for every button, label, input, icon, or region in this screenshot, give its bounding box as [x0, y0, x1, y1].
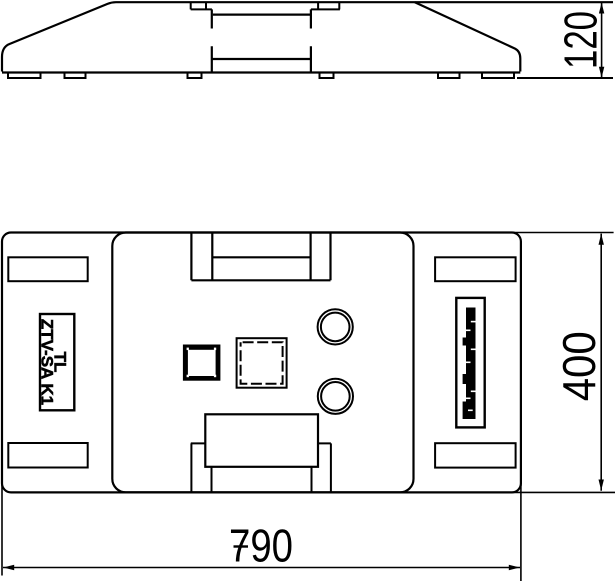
svg-text:120: 120 [555, 11, 607, 69]
svg-text:400: 400 [553, 331, 605, 401]
